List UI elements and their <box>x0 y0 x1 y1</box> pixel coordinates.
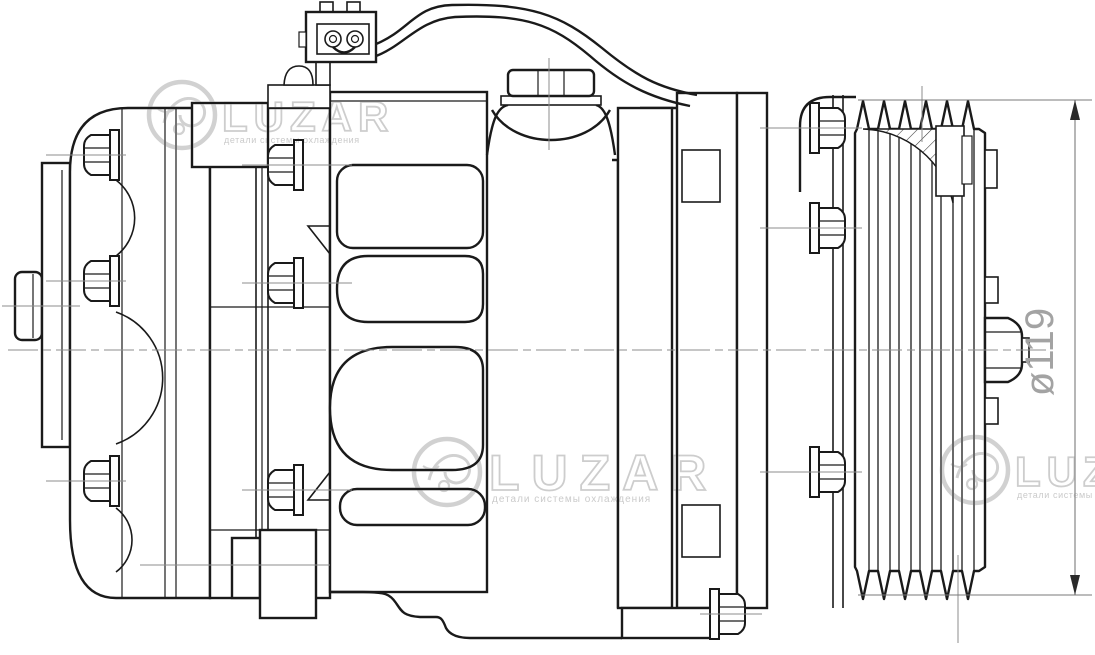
watermark-brand: LUZAR <box>1015 448 1095 495</box>
grommet <box>284 66 313 85</box>
cylinder-body <box>308 92 487 592</box>
rear-housing <box>70 108 210 598</box>
front-plate-tab <box>985 277 998 303</box>
watermark-brand: LUZAR <box>489 445 718 501</box>
page: ø119 LUZAR детали системы охлаждения LUZ… <box>0 0 1095 655</box>
oil-sump-outline <box>330 592 622 638</box>
watermark-brand: LUZAR <box>222 93 394 140</box>
arrowhead-up <box>1070 100 1080 120</box>
watermark-tagline: детали системы охлаждения <box>1017 490 1095 500</box>
front-bracket <box>618 93 856 638</box>
technical-drawing: ø119 LUZAR детали системы охлаждения LUZ… <box>0 0 1095 655</box>
dimension-label: ø119 <box>1018 308 1062 396</box>
bottom-mounting-lugs <box>232 530 316 618</box>
watermark-tagline: детали системы охлаждения <box>224 135 360 145</box>
front-plate-tab <box>985 398 998 424</box>
arrowhead-down <box>1070 575 1080 595</box>
rear-plate <box>42 163 70 447</box>
watermark-tagline: детали системы охлаждения <box>492 494 651 505</box>
hub-key <box>936 126 964 196</box>
